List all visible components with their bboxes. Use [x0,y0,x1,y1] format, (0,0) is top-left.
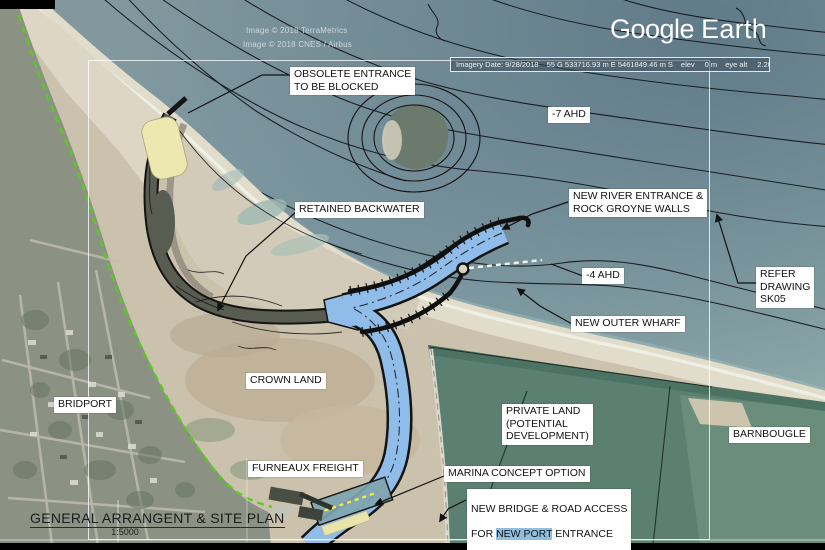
utm-coordinates: 55 G 533716.93 m E 5461849.46 m S [547,60,673,69]
label-barnbougle: BARNBOUGLE [729,427,810,443]
label-new-river-entrance: NEW RIVER ENTRANCE & ROCK GROYNE WALLS [569,189,707,217]
status-bar: Imagery Date: 9/28/2018 55 G 533716.93 m… [450,57,770,72]
eye-alt-value: 2.20 km [757,60,770,69]
logo-earth: Earth [701,14,767,44]
new-port-highlight: NEW PORT [496,528,552,540]
new-bridge-line1: NEW BRIDGE & ROAD ACCESS [471,503,627,516]
elev-value: 0 m [705,60,718,69]
label-new-bridge: NEW BRIDGE & ROAD ACCESS FOR NEW PORT EN… [467,489,631,550]
elev-label: elev [681,60,695,69]
eye-alt-label: eye alt [725,60,747,69]
logo-google: Google [610,14,694,44]
google-earth-logo: GoogleEarth [610,16,767,43]
plan-title: GENERAL ARRANGENT & SITE PLAN [30,510,285,528]
label-obsolete-entrance: OBSOLETE ENTRANCE TO BE BLOCKED [290,67,415,95]
imagery-date: Imagery Date: 9/28/2018 [456,60,539,69]
label-marina-concept: MARINA CONCEPT OPTION [444,466,590,482]
label-furneaux-freight: FURNEAUX FREIGHT [248,461,363,477]
imagery-credit-1: Image © 2018 TerraMetrics [246,26,347,35]
new-bridge-line2-pre: FOR [471,528,496,540]
label-depth-minus7: -7 AHD [548,107,590,123]
new-bridge-line2-post: ENTRANCE [552,528,613,540]
label-private-land: PRIVATE LAND (POTENTIAL DEVELOPMENT) [502,404,593,445]
groyne-round-head [458,264,469,275]
google-earth-window: Image © 2018 TerraMetrics Image © 2018 C… [0,0,825,550]
label-new-outer-wharf: NEW OUTER WHARF [571,316,685,332]
new-bridge-line2: FOR NEW PORT ENTRANCE [471,528,627,541]
label-depth-minus4: -4 AHD [582,268,624,284]
plan-scale: 1:5000 [15,527,235,537]
label-refer-drawing: REFER DRAWING SK05 [756,267,814,308]
imagery-credit-2: Image © 2018 CNES / Airbus [243,40,352,49]
label-retained-backwater: RETAINED BACKWATER [295,202,424,218]
label-crown-land: CROWN LAND [246,373,326,389]
label-bridport: BRIDPORT [54,397,116,413]
